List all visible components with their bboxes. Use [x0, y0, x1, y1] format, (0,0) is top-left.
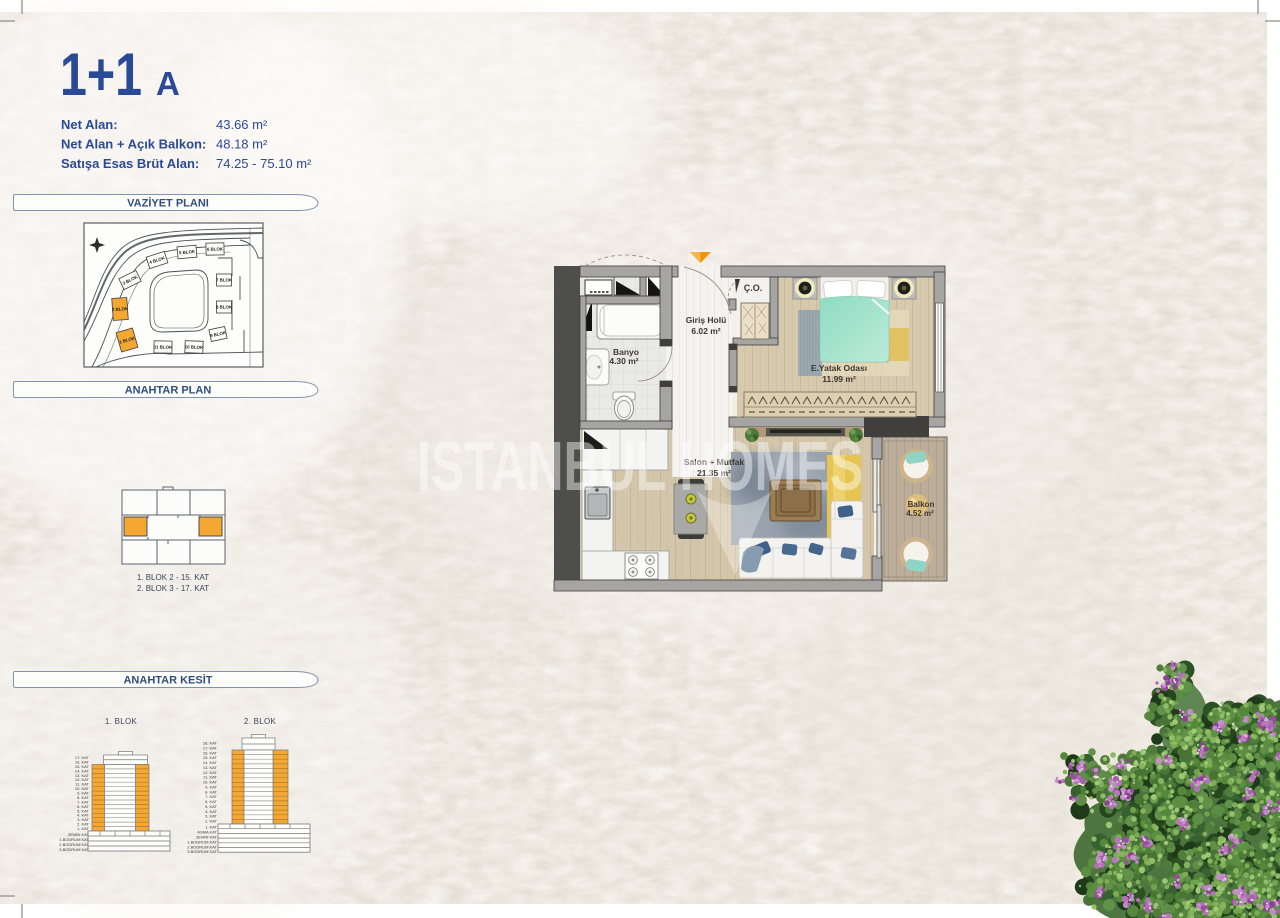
svg-text:11.99 m²: 11.99 m²: [822, 374, 856, 384]
svg-text:Net Alan:: Net Alan:: [61, 117, 118, 132]
svg-text:ANAHTAR KESİT: ANAHTAR KESİT: [123, 674, 212, 687]
svg-text:1. BLOK: 1. BLOK: [105, 717, 138, 726]
svg-text:2. BLOK 3 - 17. KAT: 2. BLOK 3 - 17. KAT: [137, 584, 209, 593]
svg-text:Ç.O.: Ç.O.: [744, 283, 763, 293]
svg-text:1+1: 1+1: [60, 41, 142, 108]
svg-text:1. BLOK 2 - 15. KAT: 1. BLOK 2 - 15. KAT: [137, 573, 209, 582]
svg-text:A: A: [156, 65, 180, 102]
svg-text:11 BLOK: 11 BLOK: [154, 344, 173, 349]
svg-text:E.Yatak Odası: E.Yatak Odası: [811, 363, 867, 373]
svg-text:2. BLOK: 2. BLOK: [244, 717, 277, 726]
svg-text:6 BLOK: 6 BLOK: [207, 246, 224, 251]
svg-text:ISTANBUL HOMES: ISTANBUL HOMES: [417, 427, 863, 505]
svg-text:Balkon: Balkon: [908, 500, 935, 509]
svg-text:3.BODRUM KAT: 3.BODRUM KAT: [59, 847, 89, 852]
svg-text:7 BLOK: 7 BLOK: [216, 278, 233, 283]
svg-text:4.30 m²: 4.30 m²: [609, 356, 638, 366]
svg-text:1. KAT: 1. KAT: [77, 826, 89, 831]
svg-text:74.25 - 75.10 m²: 74.25 - 75.10 m²: [216, 156, 312, 171]
svg-text:3.BODRUM KAT: 3.BODRUM KAT: [187, 849, 217, 854]
svg-text:4.52 m²: 4.52 m²: [906, 509, 934, 518]
svg-text:VAZİYET PLANI: VAZİYET PLANI: [127, 197, 209, 210]
svg-text:ANAHTAR PLAN: ANAHTAR PLAN: [125, 385, 212, 397]
svg-text:48.18 m²: 48.18 m²: [216, 137, 268, 152]
svg-text:Giriş Holü: Giriş Holü: [686, 315, 727, 325]
svg-text:8 BLOK: 8 BLOK: [216, 305, 233, 310]
svg-text:Satışa Esas Brüt Alan:: Satışa Esas Brüt Alan:: [61, 156, 199, 171]
svg-text:Net Alan + Açık Balkon:: Net Alan + Açık Balkon:: [61, 137, 206, 152]
svg-text:10 BLOK: 10 BLOK: [185, 344, 205, 350]
svg-text:6.02 m²: 6.02 m²: [691, 326, 720, 336]
svg-text:2. KAT: 2. KAT: [205, 819, 217, 824]
svg-text:43.66 m²: 43.66 m²: [216, 117, 268, 132]
